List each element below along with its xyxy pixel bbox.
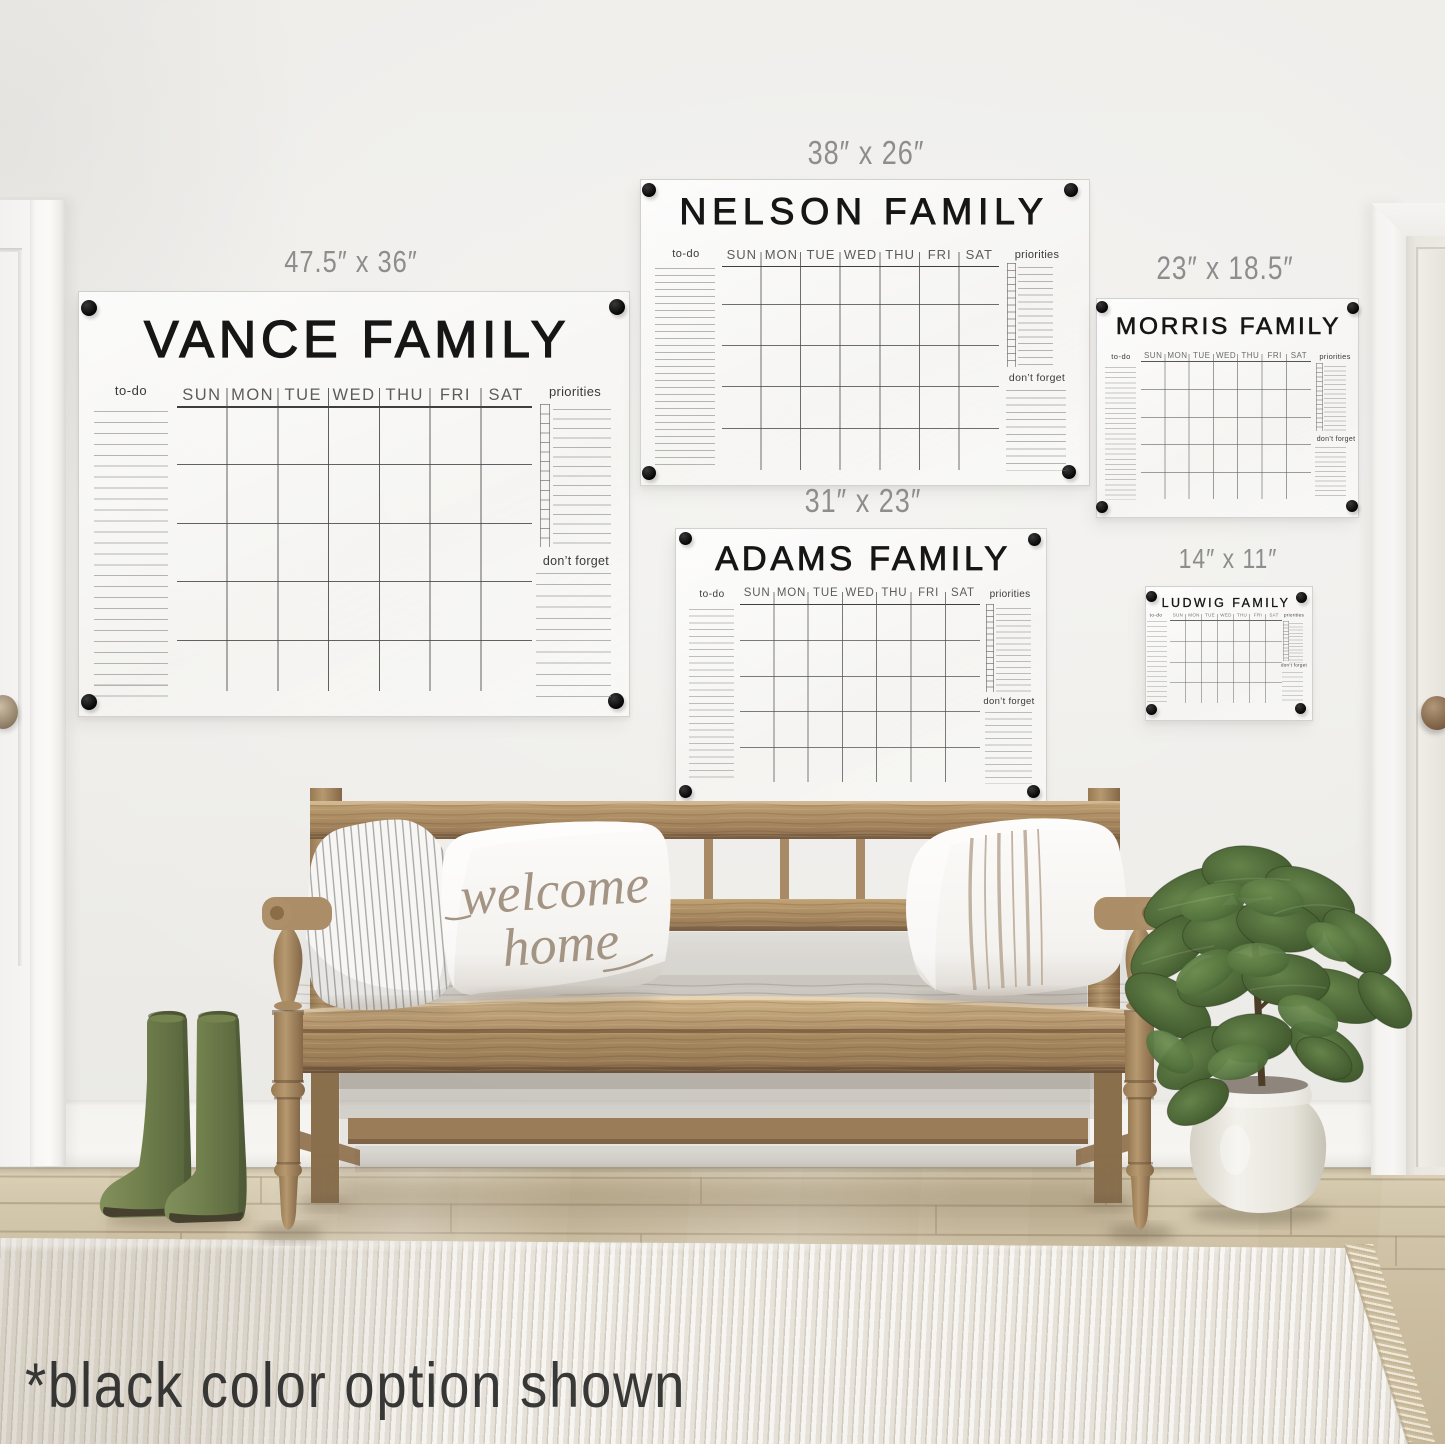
svg-text:home: home — [500, 910, 621, 978]
